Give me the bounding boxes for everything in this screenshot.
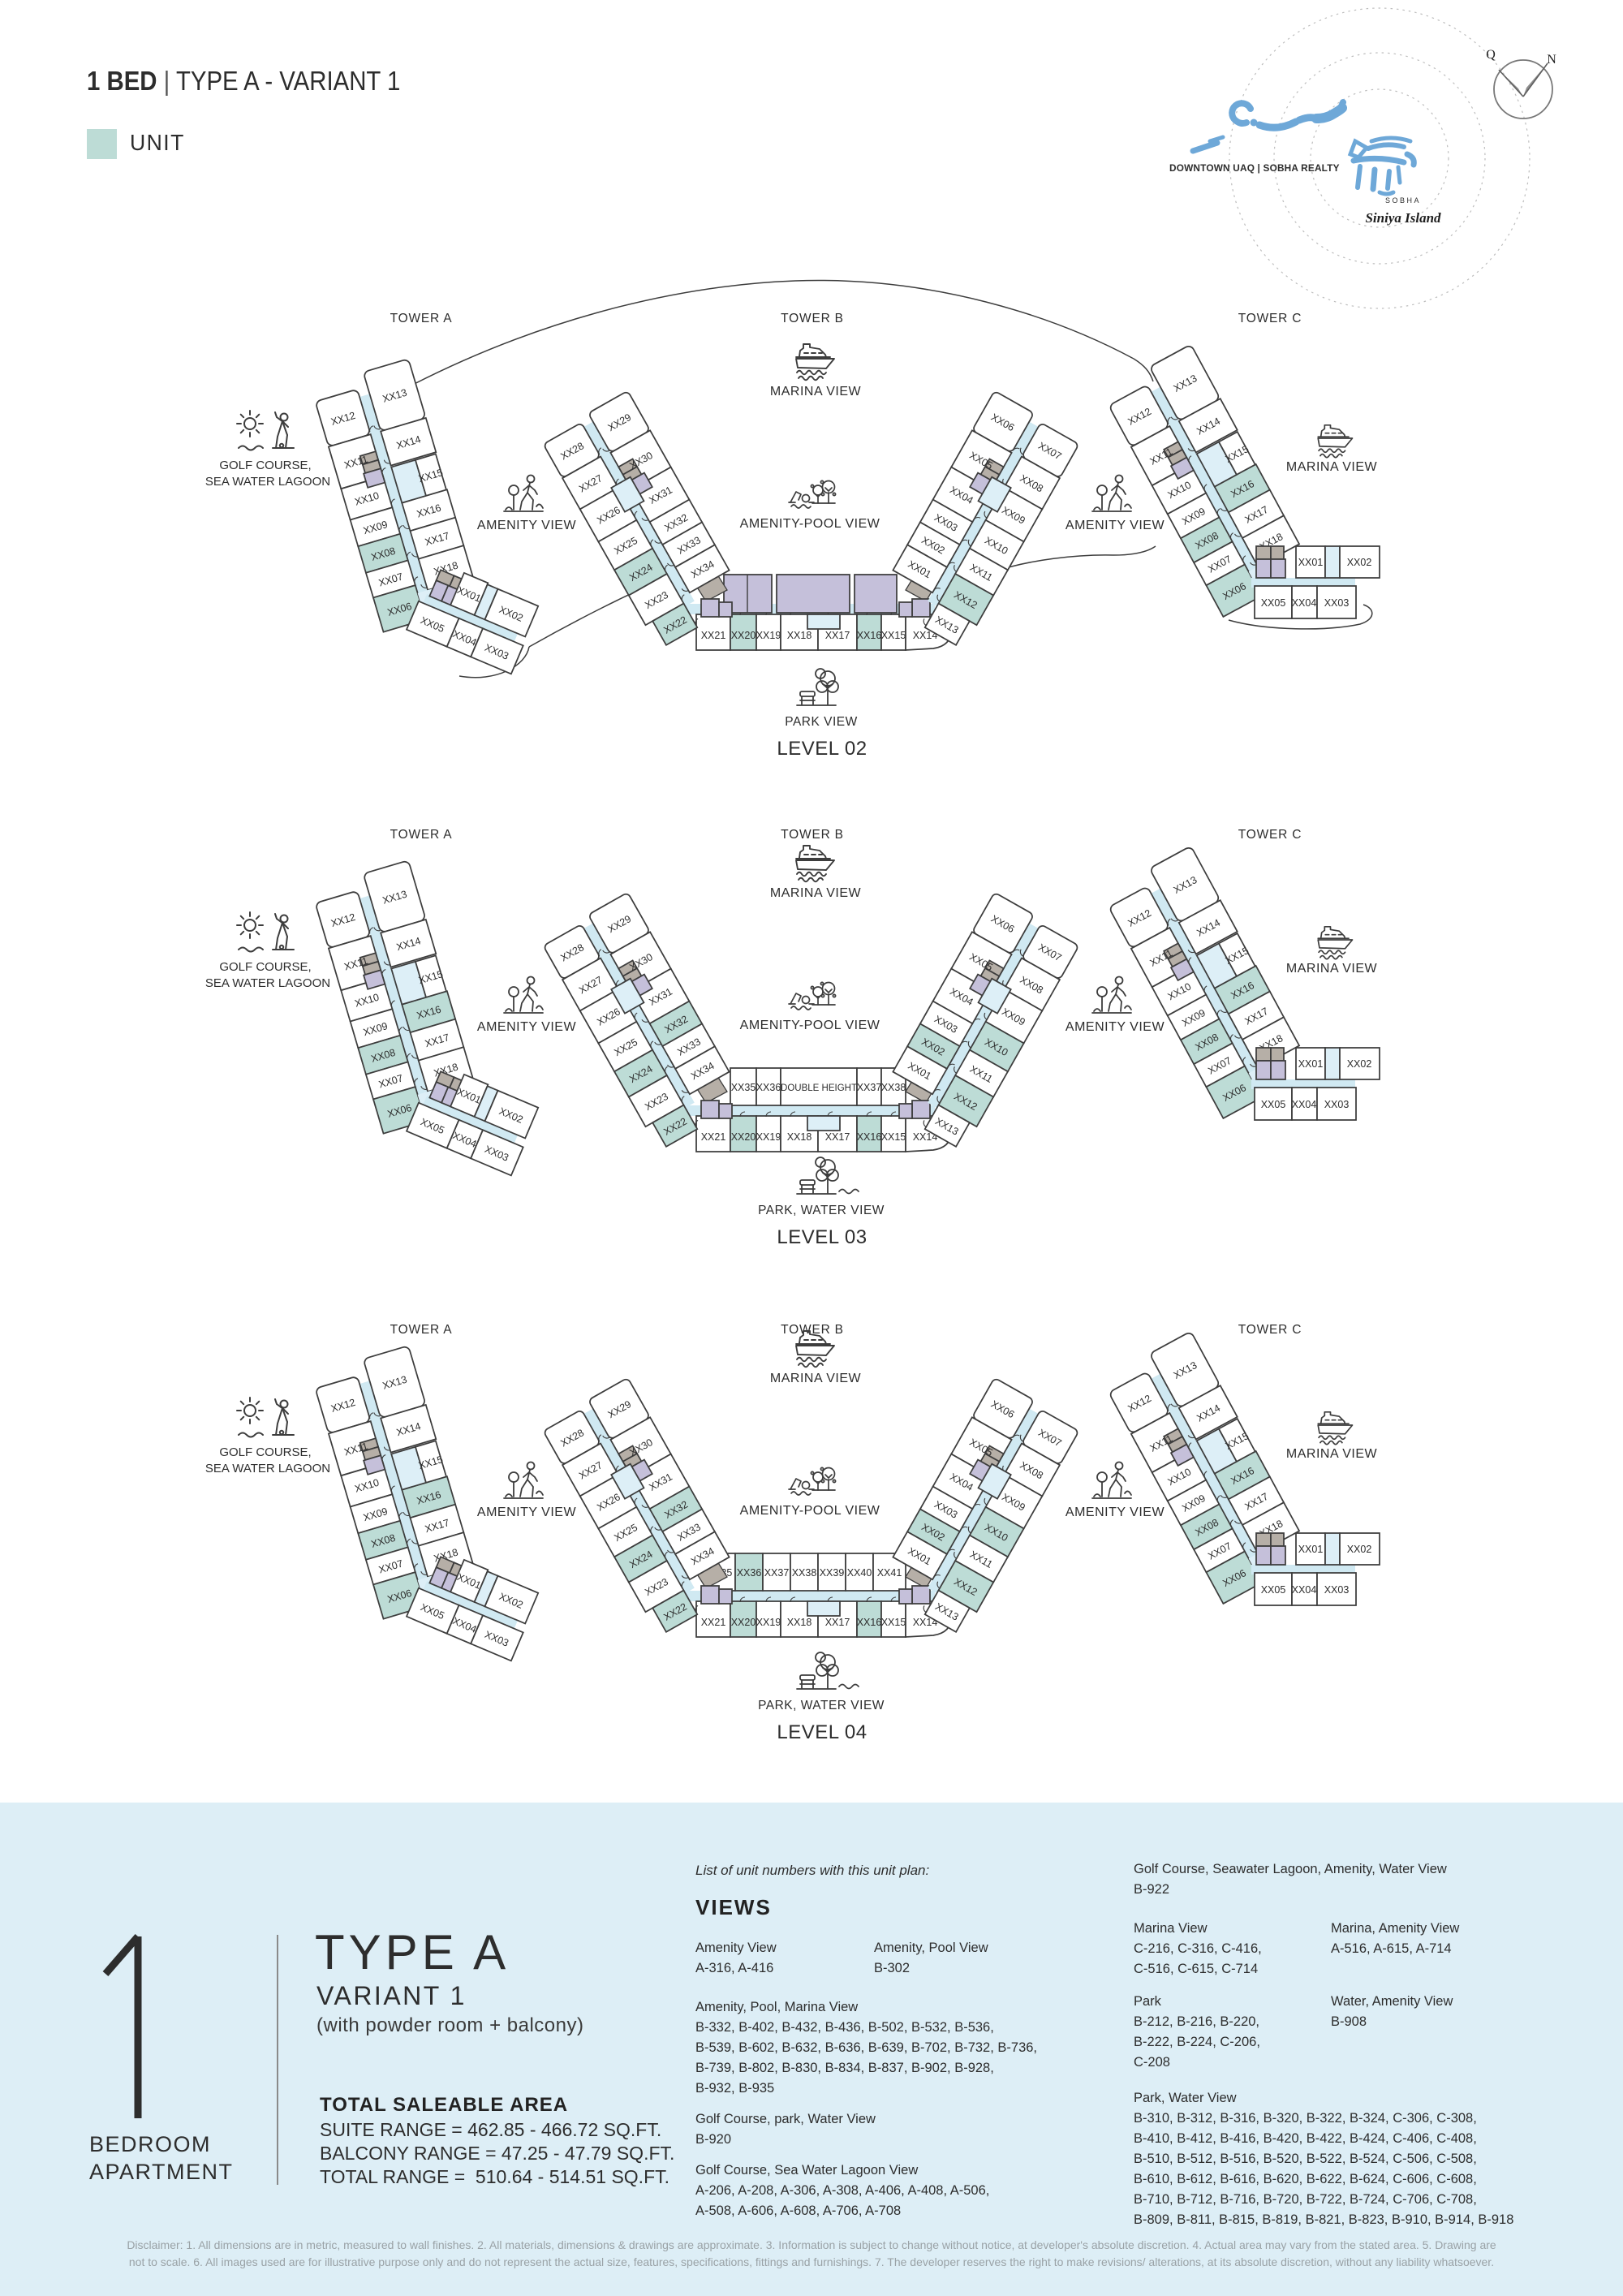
svg-text:MARINA VIEW: MARINA VIEW [1286,1447,1378,1461]
svg-text:AMENITY-POOL VIEW: AMENITY-POOL VIEW [740,517,880,531]
svg-text:AMENITY VIEW: AMENITY VIEW [477,1020,577,1034]
svg-text:AMENITY-POOL VIEW: AMENITY-POOL VIEW [740,1504,880,1518]
svg-text:XX01: XX01 [1298,1058,1324,1070]
svg-text:XX20: XX20 [731,1617,756,1628]
svg-text:XX03: XX03 [1324,597,1350,609]
svg-text:MARINA VIEW: MARINA VIEW [770,385,862,398]
svg-text:XX04: XX04 [1292,1584,1317,1596]
svg-text:PARK, WATER VIEW: PARK, WATER VIEW [758,1699,885,1712]
svg-text:MARINA VIEW: MARINA VIEW [1286,962,1378,976]
svg-text:DOUBLE HEIGHT: DOUBLE HEIGHT [781,1083,857,1093]
svg-text:LEVEL 04: LEVEL 04 [777,1721,867,1743]
svg-text:Q: Q [1486,48,1496,62]
svg-text:AMENITY VIEW: AMENITY VIEW [1065,1506,1165,1519]
svg-text:XX19: XX19 [756,1617,781,1628]
svg-text:XX21: XX21 [701,1617,726,1628]
svg-text:TOWER A: TOWER A [390,828,453,842]
svg-text:TOWER C: TOWER C [1238,1323,1302,1337]
svg-text:XX38: XX38 [792,1567,817,1579]
svg-text:XX21: XX21 [701,630,726,641]
svg-text:AMENITY VIEW: AMENITY VIEW [477,1506,577,1519]
svg-text:XX05: XX05 [1261,1099,1286,1110]
svg-text:XX36: XX36 [756,1082,781,1093]
svg-text:PARK, WATER VIEW: PARK, WATER VIEW [758,1204,885,1217]
svg-text:XX17: XX17 [825,1617,850,1628]
svg-text:XX03: XX03 [1324,1099,1350,1110]
svg-text:SOBHA: SOBHA [1385,196,1421,205]
svg-text:XX01: XX01 [1298,1544,1324,1555]
svg-text:MARINA VIEW: MARINA VIEW [770,886,862,900]
svg-text:XX36: XX36 [737,1567,762,1579]
svg-text:SEA WATER LAGOON: SEA WATER LAGOON [205,475,330,489]
svg-text:XX04: XX04 [1292,597,1317,609]
svg-text:XX20: XX20 [731,1131,756,1143]
svg-text:TOWER A: TOWER A [390,312,453,325]
svg-text:TOWER C: TOWER C [1238,828,1302,842]
svg-text:XX21: XX21 [701,1131,726,1143]
svg-text:XX05: XX05 [1261,1584,1286,1596]
svg-text:AMENITY VIEW: AMENITY VIEW [1065,1020,1165,1034]
svg-text:GOLF COURSE,: GOLF COURSE, [219,1445,311,1459]
svg-text:PARK VIEW: PARK VIEW [785,715,857,729]
svg-text:XX15: XX15 [881,1617,906,1628]
svg-text:XX17: XX17 [825,1131,850,1143]
svg-text:LEVEL 03: LEVEL 03 [777,1226,867,1248]
svg-text:XX37: XX37 [857,1082,882,1093]
svg-text:XX16: XX16 [857,1617,882,1628]
svg-text:XX02: XX02 [1347,1058,1372,1070]
svg-text:XX16: XX16 [857,630,882,641]
svg-text:SEA WATER LAGOON: SEA WATER LAGOON [205,1462,330,1475]
svg-text:XX03: XX03 [1324,1584,1350,1596]
svg-text:AMENITY VIEW: AMENITY VIEW [1065,519,1165,532]
svg-text:XX18: XX18 [787,1131,812,1143]
svg-text:MARINA VIEW: MARINA VIEW [1286,460,1378,474]
svg-text:N: N [1547,53,1556,67]
svg-text:GOLF COURSE,: GOLF COURSE, [219,459,311,472]
svg-text:XX01: XX01 [1298,557,1324,568]
svg-text:XX20: XX20 [731,630,756,641]
svg-text:XX18: XX18 [787,1617,812,1628]
svg-text:DOWNTOWN UAQ | SOBHA REALTY: DOWNTOWN UAQ | SOBHA REALTY [1169,162,1340,174]
svg-text:XX16: XX16 [857,1131,882,1143]
svg-text:XX38: XX38 [881,1082,906,1093]
svg-text:LEVEL 02: LEVEL 02 [777,738,867,760]
svg-text:SEA WATER LAGOON: SEA WATER LAGOON [205,976,330,990]
svg-text:TOWER B: TOWER B [781,828,844,842]
svg-text:TOWER C: TOWER C [1238,312,1302,325]
svg-text:XX04: XX04 [1292,1099,1317,1110]
svg-text:Siniya Island: Siniya Island [1365,210,1441,226]
svg-text:TOWER A: TOWER A [390,1323,453,1337]
svg-text:XX17: XX17 [825,630,850,641]
svg-text:XX02: XX02 [1347,1544,1372,1555]
svg-text:XX41: XX41 [877,1567,902,1579]
svg-text:XX40: XX40 [847,1567,872,1579]
svg-text:TOWER B: TOWER B [781,312,844,325]
svg-text:XX18: XX18 [787,630,812,641]
svg-text:XX02: XX02 [1347,557,1372,568]
svg-text:AMENITY VIEW: AMENITY VIEW [477,519,577,532]
svg-text:XX39: XX39 [820,1567,845,1579]
svg-text:XX19: XX19 [756,630,781,641]
svg-text:XX15: XX15 [881,630,906,641]
svg-text:AMENITY-POOL VIEW: AMENITY-POOL VIEW [740,1019,880,1032]
svg-text:XX37: XX37 [764,1567,790,1579]
svg-text:MARINA VIEW: MARINA VIEW [770,1372,862,1385]
svg-text:GOLF COURSE,: GOLF COURSE, [219,960,311,974]
svg-text:XX19: XX19 [756,1131,781,1143]
svg-text:XX15: XX15 [881,1131,906,1143]
svg-text:XX35: XX35 [731,1082,756,1093]
svg-text:XX05: XX05 [1261,597,1286,609]
